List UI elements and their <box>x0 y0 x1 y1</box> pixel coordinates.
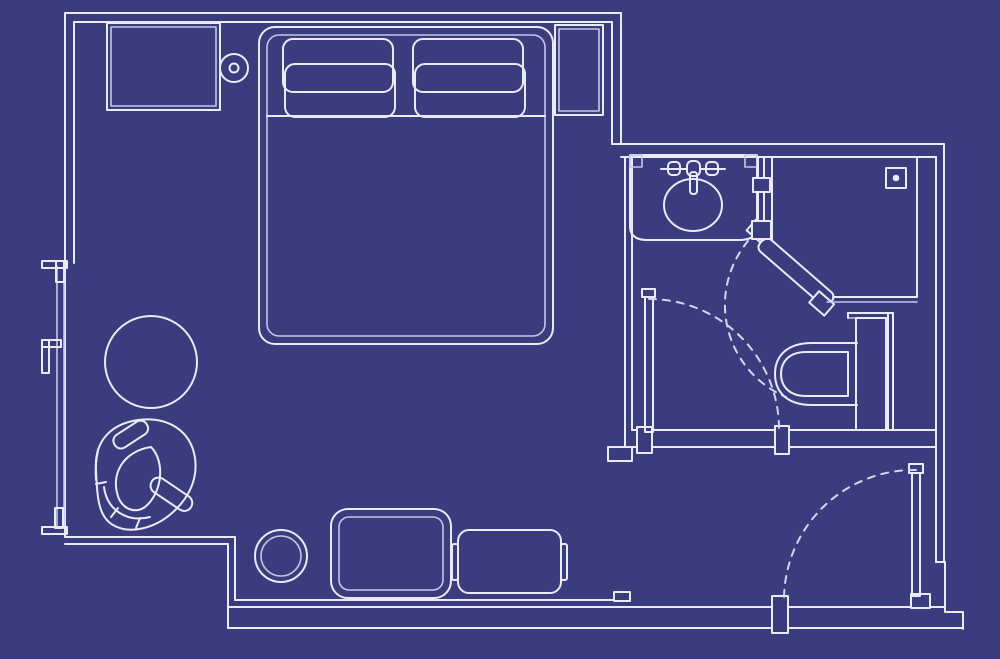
shower-drain <box>886 168 906 188</box>
right-wall <box>936 144 963 629</box>
luggage-bench <box>452 530 567 593</box>
entry-door <box>784 464 923 600</box>
bottom-wall <box>228 592 963 628</box>
bathroom-door <box>642 289 779 432</box>
reading-light <box>220 54 248 82</box>
pillow-right <box>413 39 525 117</box>
armchair <box>96 418 196 530</box>
round-table <box>105 316 197 408</box>
ottoman <box>331 509 451 598</box>
left-window-wall <box>42 13 74 537</box>
east-wall-upper <box>612 13 621 144</box>
floor-plan-page <box>0 0 1000 659</box>
shower-partition <box>752 157 771 240</box>
headboard-cabinet <box>107 23 220 110</box>
sink <box>664 179 722 231</box>
floor-plan-svg <box>0 0 1000 659</box>
bathroom-west-wall <box>608 157 632 461</box>
vanity-counter <box>630 155 757 240</box>
top-wall <box>65 13 621 22</box>
bathroom-south-wall <box>632 426 936 454</box>
bed <box>259 27 553 344</box>
nightstand <box>555 25 603 115</box>
pouf <box>255 530 307 582</box>
bottom-step-wall <box>65 537 235 628</box>
pillow-left <box>283 39 395 117</box>
toilet <box>775 318 886 430</box>
